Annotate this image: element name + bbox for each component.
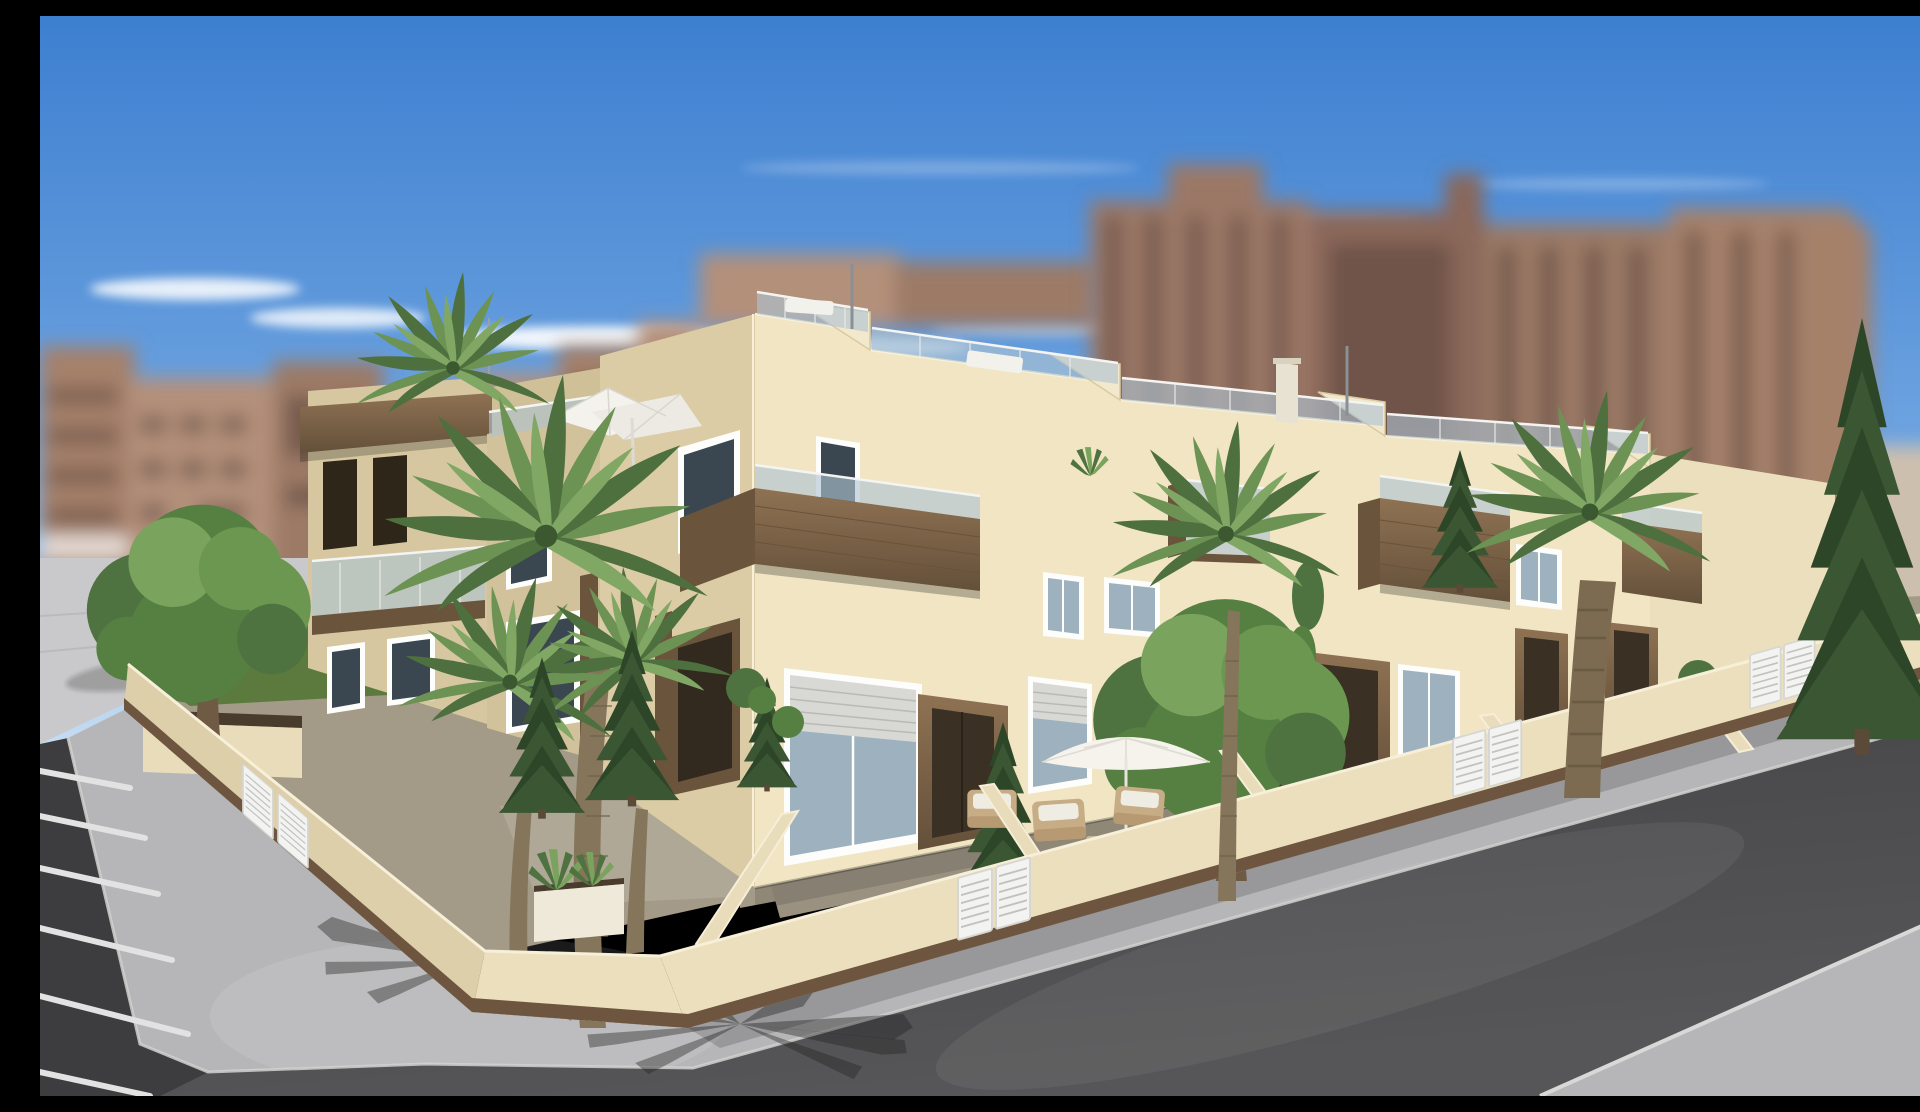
sliding-door <box>784 668 922 866</box>
pergola-opening <box>373 455 407 546</box>
garden-gate <box>996 857 1030 929</box>
agave-planter <box>528 849 624 942</box>
garden-gate <box>1489 720 1521 787</box>
white-railing-sliver <box>40 536 128 558</box>
chimney <box>1273 358 1301 424</box>
architectural-render <box>40 16 1920 1096</box>
shrub <box>772 706 804 738</box>
wicker-chair <box>1032 798 1087 842</box>
window <box>327 642 365 714</box>
garden-gate <box>958 868 992 940</box>
window <box>1104 577 1160 638</box>
window <box>1043 572 1084 640</box>
garden-gate <box>1750 646 1781 709</box>
pergola-opening <box>323 459 357 550</box>
garden-gate <box>1453 730 1485 797</box>
roller-shutter-window <box>1028 676 1092 794</box>
render-scene <box>40 16 1920 1096</box>
